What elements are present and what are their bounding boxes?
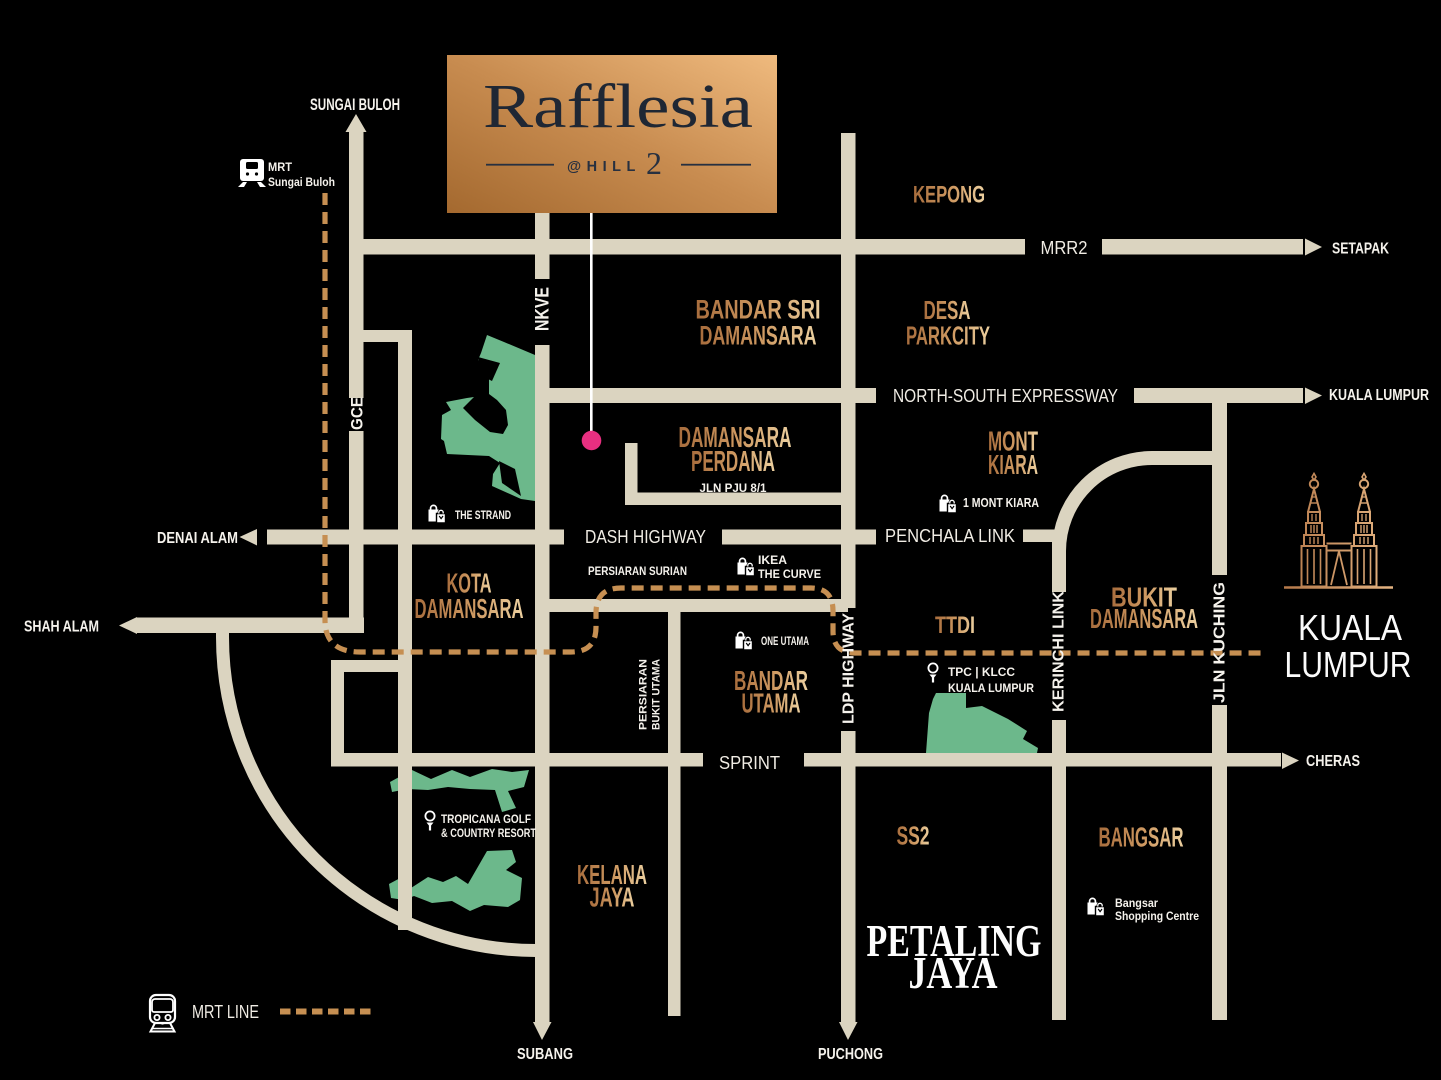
svg-text:KEPONG: KEPONG — [913, 182, 985, 209]
svg-text:PERSIARAN: PERSIARAN — [638, 659, 650, 730]
svg-text:TROPICANA GOLF: TROPICANA GOLF — [441, 814, 531, 826]
svg-text:TPC | KLCC: TPC | KLCC — [948, 665, 1015, 679]
svg-text:KUALA: KUALA — [1298, 607, 1402, 648]
svg-text:MRT LINE: MRT LINE — [192, 1001, 259, 1022]
svg-text:JAYA: JAYA — [909, 948, 998, 998]
svg-text:1 MONT KIARA: 1 MONT KIARA — [963, 496, 1039, 510]
svg-text:Sungai Buloh: Sungai Buloh — [268, 175, 335, 189]
svg-text:BANGSAR: BANGSAR — [1099, 822, 1184, 853]
svg-text:THE STRAND: THE STRAND — [455, 510, 511, 522]
svg-text:Bangsar: Bangsar — [1115, 896, 1158, 910]
svg-text:SETAPAK: SETAPAK — [1332, 241, 1390, 258]
svg-text:SUNGAI BULOH: SUNGAI BULOH — [310, 95, 400, 114]
svg-text:SHAH ALAM: SHAH ALAM — [24, 619, 99, 636]
svg-text:DAMANSARA: DAMANSARA — [700, 321, 817, 351]
svg-text:NORTH-SOUTH EXPRESSWAY: NORTH-SOUTH EXPRESSWAY — [893, 385, 1118, 406]
svg-text:UTAMA: UTAMA — [742, 688, 801, 719]
svg-text:& COUNTRY RESORT: & COUNTRY RESORT — [441, 828, 536, 840]
svg-text:JAYA: JAYA — [590, 882, 635, 913]
svg-text:LDP HIGHWAY: LDP HIGHWAY — [841, 612, 858, 724]
svg-text:KIARA: KIARA — [988, 449, 1038, 480]
svg-text:PARKCITY: PARKCITY — [906, 321, 990, 351]
svg-text:KERINCHI LINK: KERINCHI LINK — [1051, 590, 1068, 712]
svg-text:BUKIT UTAMA: BUKIT UTAMA — [651, 659, 663, 730]
svg-text:DAMANSARA: DAMANSARA — [1090, 603, 1198, 634]
svg-text:IKEA: IKEA — [758, 555, 787, 567]
svg-text:THE CURVE: THE CURVE — [758, 569, 821, 581]
svg-text:ONE UTAMA: ONE UTAMA — [761, 636, 809, 648]
svg-text:MRR2: MRR2 — [1041, 237, 1088, 258]
svg-text:KUALA LUMPUR: KUALA LUMPUR — [948, 681, 1034, 695]
svg-text:TTDI: TTDI — [935, 612, 975, 639]
svg-text:PENCHALA LINK: PENCHALA LINK — [885, 525, 1016, 546]
svg-text:DASH HIGHWAY: DASH HIGHWAY — [585, 526, 706, 547]
svg-text:PERSIARAN SURIAN: PERSIARAN SURIAN — [588, 566, 687, 578]
svg-text:2: 2 — [646, 145, 662, 181]
svg-text:SUBANG: SUBANG — [517, 1046, 573, 1063]
svg-text:Rafflesia: Rafflesia — [483, 73, 753, 141]
svg-text:NKVE: NKVE — [533, 287, 554, 331]
svg-text:KUALA LUMPUR: KUALA LUMPUR — [1329, 387, 1429, 404]
svg-text:SS2: SS2 — [897, 821, 930, 851]
svg-text:MRT: MRT — [268, 160, 293, 174]
svg-text:GCE: GCE — [348, 397, 367, 430]
svg-text:JLN PJU 8/1: JLN PJU 8/1 — [700, 481, 767, 495]
svg-text:SPRINT: SPRINT — [719, 752, 780, 773]
svg-text:PUCHONG: PUCHONG — [818, 1046, 883, 1063]
svg-text:Shopping Centre: Shopping Centre — [1115, 909, 1199, 923]
svg-text:PERDANA: PERDANA — [691, 446, 775, 478]
svg-text:LUMPUR: LUMPUR — [1285, 644, 1412, 685]
svg-text:@HILL: @HILL — [567, 159, 641, 175]
svg-text:DENAI ALAM: DENAI ALAM — [157, 530, 238, 547]
svg-text:DAMANSARA: DAMANSARA — [415, 593, 524, 624]
svg-text:CHERAS: CHERAS — [1306, 753, 1360, 770]
svg-text:JLN KUCHING: JLN KUCHING — [1212, 582, 1229, 703]
